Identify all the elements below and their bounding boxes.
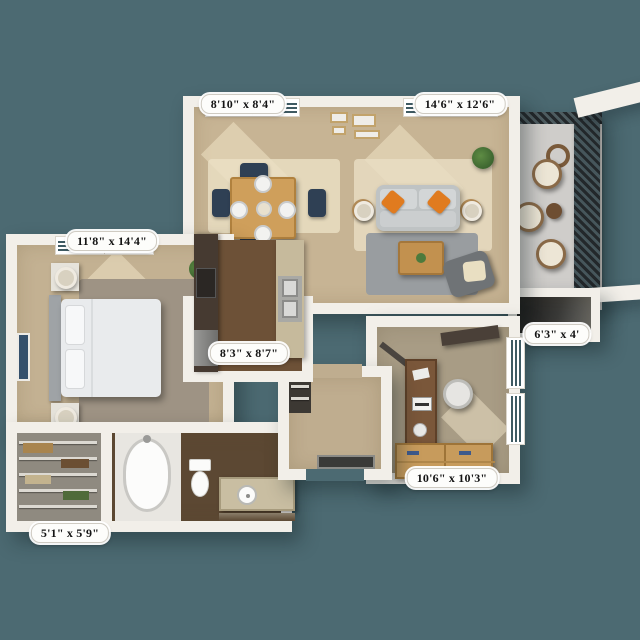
closet-items [25,475,51,484]
toilet [189,459,211,471]
entry-threshold [317,455,375,469]
bed-pillow [65,305,85,345]
bathroom-closet-block [6,422,292,532]
dining-chair [212,189,230,217]
dining-chair [308,189,326,217]
office-chair [443,379,473,409]
window [507,394,524,444]
kitchen-island [276,240,304,358]
dimension-label-bedroom: 11'8" x 14'4" [67,231,157,251]
wall-art-frame [354,130,380,139]
double-sink [278,276,302,322]
closet-items [61,459,89,468]
bed [61,299,161,397]
bedside-lamp [55,267,77,289]
dimension-label-den: 10'6" x 10'3" [407,468,498,488]
window [507,338,524,388]
wall-art-frame [332,126,346,135]
laptop [412,397,432,411]
stove [196,268,216,298]
dimension-label-living: 14'6" x 12'6" [415,94,506,114]
bath-faucet-icon [143,435,151,443]
wall-shelf [440,325,499,346]
dining-table [230,177,296,239]
entry-door-opening [306,469,364,481]
closet-items [63,491,89,500]
floorplan: 8'10" x 8'4" 14'6" x 12'6" 11'8" x 14'4"… [0,0,640,640]
bathroom-vanity [219,477,295,511]
coffee-table [398,241,444,275]
desk-plate [413,423,427,437]
wall-art-frame [352,114,376,127]
bathtub [123,438,171,512]
sink [237,485,257,505]
toilet-bowl [191,471,209,497]
potted-plant [472,147,494,169]
entry-hallway [278,366,392,480]
table-lamp [462,201,482,221]
bed-headboard [49,295,61,401]
wall-art-frame [330,112,348,123]
closet-bath-divider-wall [101,433,112,521]
balcony-arm-upper [574,81,640,118]
walk-in-closet [17,433,101,521]
closet-items [23,443,53,453]
table-lamp [354,201,374,221]
wall-art-frame [17,333,30,381]
balcony-chair [536,239,566,269]
dimension-label-closet: 5'1" x 5'9" [31,523,109,543]
balcony-chair [532,159,562,189]
desk [405,359,437,445]
balcony-railing-right [574,120,600,302]
vanity-mirror-reflection [219,513,295,521]
dimension-label-dining: 8'10" x 8'4" [201,94,285,114]
desk-papers [412,367,430,380]
bed-pillow [65,349,85,389]
bathtub-surround [115,433,181,521]
dimension-label-kitchen: 8'3" x 8'7" [210,343,288,363]
balcony-table [546,203,562,219]
dimension-label-storage: 6'3" x 4' [524,324,589,344]
